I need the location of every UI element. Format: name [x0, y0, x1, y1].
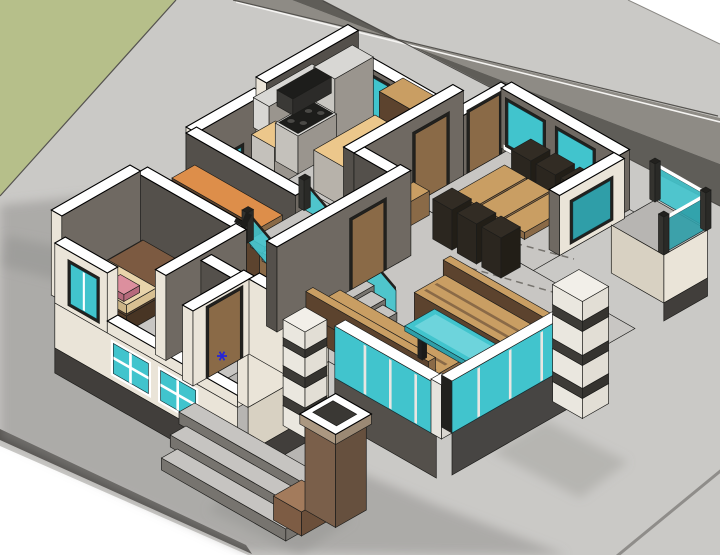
wall-dining-front	[549, 190, 560, 256]
balcony-post	[701, 190, 706, 231]
balcony-post	[664, 214, 669, 255]
bedroom-window-mullion	[83, 272, 85, 311]
glass-mullion	[540, 331, 543, 382]
burner	[299, 121, 307, 125]
wall-hall-living	[267, 241, 278, 332]
glass-corner-post	[431, 379, 442, 439]
wall-bath-nw	[155, 270, 166, 361]
model-layers	[0, 0, 720, 555]
stair-newel	[299, 178, 304, 211]
glass-mullion	[414, 374, 417, 425]
burner	[287, 119, 295, 123]
living-glass-wall2	[442, 375, 453, 433]
burner	[305, 109, 313, 113]
revit-3d-view	[0, 0, 720, 555]
balcony-post	[650, 161, 655, 202]
glass-mullion	[389, 359, 392, 410]
glass-mullion	[509, 349, 512, 400]
balcony-post	[655, 161, 660, 202]
glass-mullion	[364, 345, 367, 396]
balcony-post	[706, 190, 711, 231]
burner	[317, 111, 325, 115]
glass-mullion	[477, 367, 480, 418]
isometric-house-model-viewport[interactable]	[0, 0, 720, 555]
wall-entry-recess	[183, 305, 194, 386]
balcony-post	[659, 214, 664, 255]
stair-newel	[304, 177, 310, 211]
